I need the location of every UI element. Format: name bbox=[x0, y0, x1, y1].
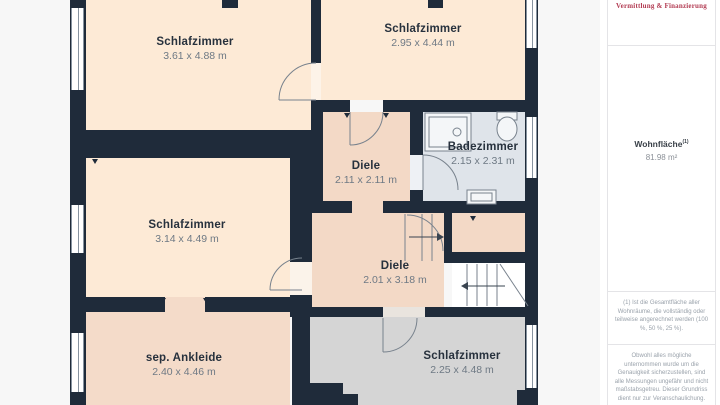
room-name: sep. Ankleide bbox=[146, 352, 222, 364]
door-arc bbox=[279, 63, 316, 100]
divider bbox=[608, 344, 715, 345]
room-dimensions: 3.14 x 4.49 m bbox=[148, 233, 225, 245]
room-dimensions: 2.11 x 2.11 m bbox=[335, 174, 397, 186]
toilet-icon bbox=[497, 112, 517, 141]
room-label-bedroom-mid-left: Schlafzimmer 3.14 x 4.49 m bbox=[148, 219, 225, 245]
stairs-arrow-up bbox=[437, 233, 444, 241]
room-name: Diele bbox=[335, 160, 397, 172]
room-name: Schlafzimmer bbox=[423, 350, 500, 362]
broker-logo-text: Vermittlung & Finanzierung bbox=[608, 2, 715, 10]
room-name: Schlafzimmer bbox=[148, 219, 225, 231]
room-name: Badezimmer bbox=[448, 141, 518, 153]
room-name: Diele bbox=[363, 260, 427, 272]
room-label-bathroom: Badezimmer 2.15 x 2.31 m bbox=[448, 141, 518, 167]
room-label-hall-upper: Diele 2.11 x 2.11 m bbox=[335, 160, 397, 186]
room-dimensions: 2.40 x 4.46 m bbox=[146, 366, 222, 378]
footnote-disclaimer: Obwohl alles mögliche unternommen wurde … bbox=[613, 352, 710, 403]
sink-icon bbox=[467, 190, 496, 204]
plan-symbols bbox=[0, 0, 600, 405]
room-name: Schlafzimmer bbox=[156, 36, 233, 48]
floorplan-page: Schlafzimmer 3.61 x 4.88 m Schlafzimmer … bbox=[0, 0, 720, 405]
footnote-area-definition: (1) Ist die Gesamtfläche aller Wohnräume… bbox=[613, 299, 710, 333]
room-dimensions: 2.25 x 4.48 m bbox=[423, 364, 500, 376]
living-area-footnote-marker: (1) bbox=[682, 139, 688, 145]
living-area-label-text: Wohnfläche bbox=[634, 139, 682, 149]
room-dimensions: 2.15 x 2.31 m bbox=[448, 155, 518, 167]
stairs-arrow-down bbox=[461, 282, 468, 290]
room-label-bedroom-bottom: Schlafzimmer 2.25 x 4.48 m bbox=[423, 350, 500, 376]
room-label-hall-lower: Diele 2.01 x 3.18 m bbox=[363, 260, 427, 286]
room-label-dressing: sep. Ankleide 2.40 x 4.46 m bbox=[146, 352, 222, 378]
door-arc bbox=[270, 258, 302, 290]
door-arc bbox=[383, 318, 417, 352]
room-dimensions: 2.01 x 3.18 m bbox=[363, 274, 427, 286]
door-arc bbox=[350, 112, 383, 145]
floorplan: Schlafzimmer 3.61 x 4.88 m Schlafzimmer … bbox=[0, 0, 600, 405]
room-dimensions: 2.95 x 4.44 m bbox=[384, 37, 461, 49]
room-label-bedroom-top-right: Schlafzimmer 2.95 x 4.44 m bbox=[384, 23, 461, 49]
room-label-bedroom-top-left: Schlafzimmer 3.61 x 4.88 m bbox=[156, 36, 233, 62]
living-area-label: Wohnfläche(1) bbox=[608, 139, 715, 149]
sidebar: Vermittlung & Finanzierung Wohnfläche(1)… bbox=[600, 0, 720, 405]
sidebar-panel: Vermittlung & Finanzierung Wohnfläche(1)… bbox=[607, 0, 716, 405]
straight-stairs bbox=[467, 264, 528, 306]
room-dimensions: 3.61 x 4.88 m bbox=[156, 50, 233, 62]
living-area-block: Wohnfläche(1) 81.98 m² bbox=[608, 139, 715, 162]
room-name: Schlafzimmer bbox=[384, 23, 461, 35]
living-area-value: 81.98 m² bbox=[608, 153, 715, 162]
divider bbox=[608, 291, 715, 292]
divider bbox=[608, 45, 715, 46]
